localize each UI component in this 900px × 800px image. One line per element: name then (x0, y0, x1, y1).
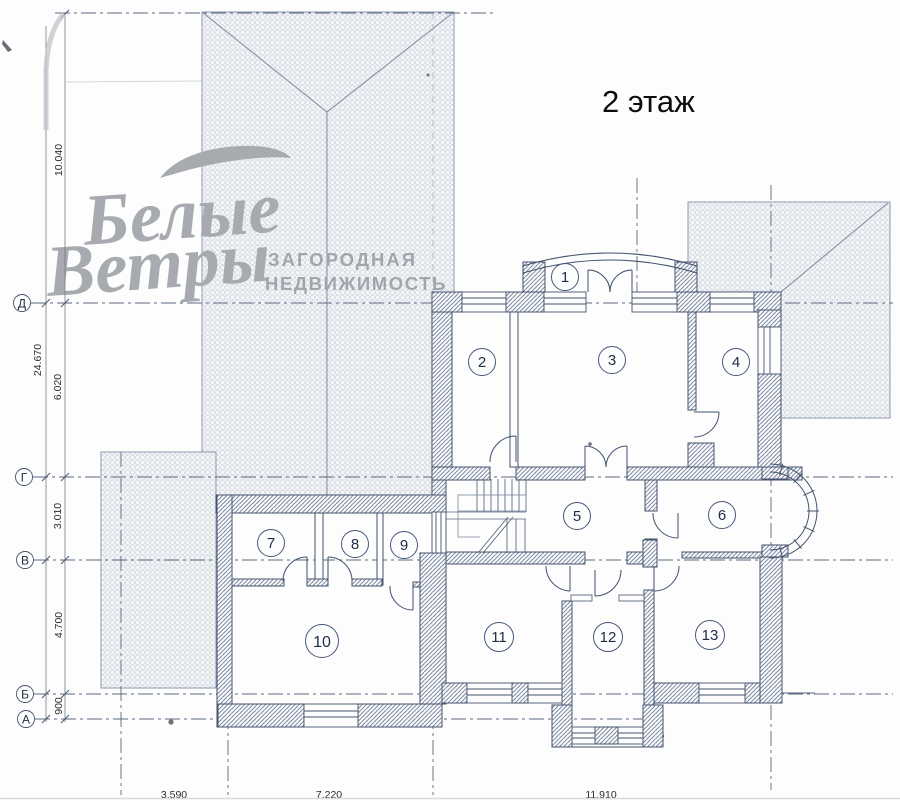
svg-text:А: А (22, 713, 30, 727)
svg-text:5: 5 (573, 508, 581, 525)
svg-text:2 этаж: 2 этаж (602, 84, 695, 119)
svg-text:900: 900 (53, 697, 65, 715)
svg-text:1: 1 (561, 269, 569, 286)
svg-text:Г: Г (21, 471, 28, 485)
svg-text:ЗАГОРОДНАЯ: ЗАГОРОДНАЯ (268, 249, 417, 270)
svg-text:8: 8 (351, 536, 359, 553)
svg-text:3.010: 3.010 (52, 503, 64, 529)
svg-text:6: 6 (718, 507, 726, 524)
svg-text:6.020: 6.020 (52, 374, 64, 400)
svg-text:10.040: 10.040 (53, 144, 65, 176)
svg-text:3: 3 (608, 352, 616, 369)
svg-text:НЕДВИЖИМОСТЬ: НЕДВИЖИМОСТЬ (265, 273, 447, 294)
svg-text:4.700: 4.700 (53, 612, 65, 638)
svg-text:10: 10 (313, 634, 331, 651)
svg-text:24.670: 24.670 (32, 344, 44, 376)
svg-text:Б: Б (21, 688, 29, 702)
svg-text:12: 12 (600, 629, 617, 646)
svg-text:Ветры: Ветры (42, 216, 272, 313)
svg-text:В: В (21, 554, 29, 568)
svg-text:13: 13 (702, 627, 719, 644)
svg-text:4: 4 (732, 354, 740, 371)
svg-text:2: 2 (478, 354, 486, 371)
svg-text:Д: Д (18, 297, 26, 311)
svg-text:7: 7 (267, 535, 275, 552)
svg-text:11: 11 (491, 629, 507, 646)
svg-text:9: 9 (400, 537, 408, 554)
